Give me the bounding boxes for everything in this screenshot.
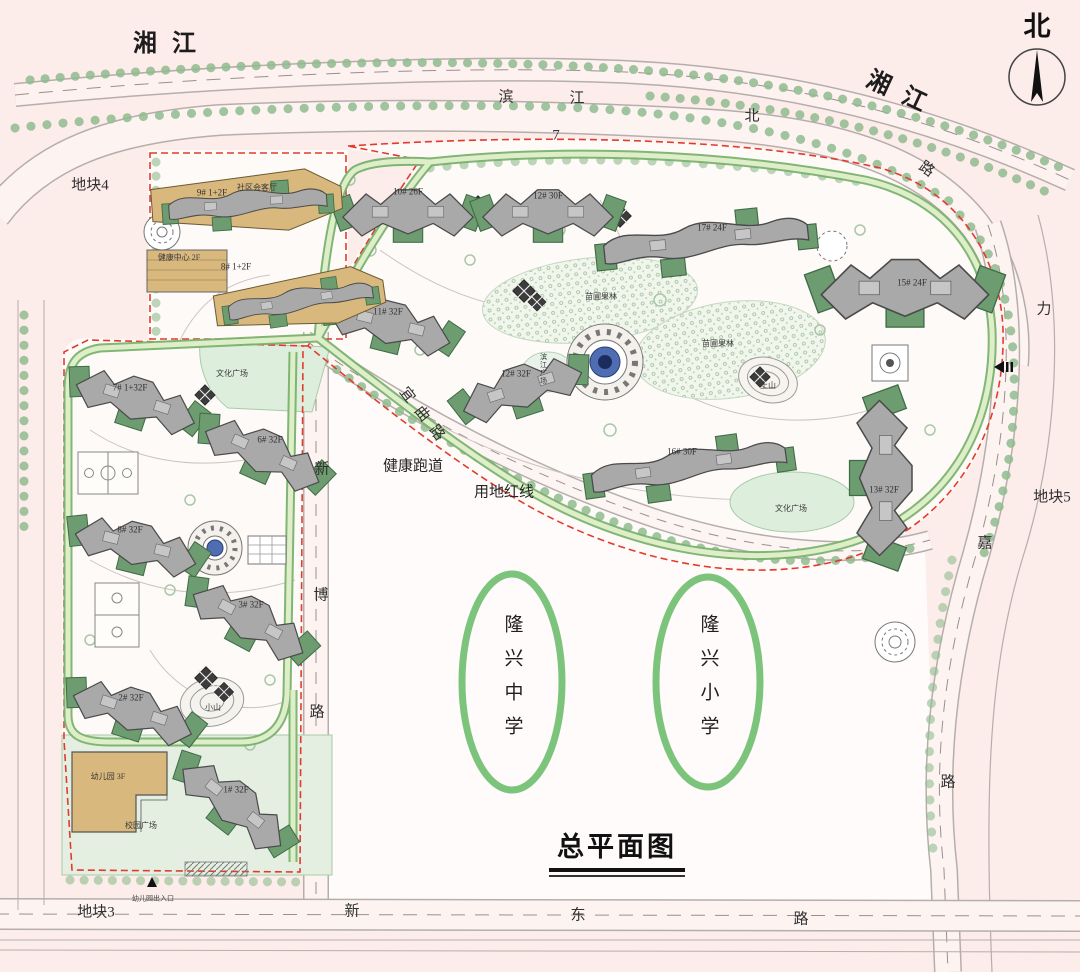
site-plan-drawing: [0, 0, 1080, 972]
plan-title: 总平面图: [549, 825, 685, 877]
basketball-court-south: [95, 583, 139, 647]
plan-title-text: 总平面图: [549, 825, 685, 872]
north-label: 北: [1024, 5, 1051, 44]
grid-plaza-west: [248, 536, 286, 564]
entrance-crosswalk: [185, 862, 247, 876]
culture-plaza-east: [730, 472, 854, 532]
basketball-court-north: [78, 452, 138, 494]
round-plaza: [817, 231, 847, 261]
north-compass: [1009, 49, 1065, 105]
title-underline: [549, 875, 685, 877]
site-plan-page: { "title": "总平面图", "compass": { "label":…: [0, 0, 1080, 972]
grid-plaza-east: [872, 345, 908, 381]
building-health-center: [147, 250, 227, 292]
spiral-feature-east: [875, 622, 915, 662]
